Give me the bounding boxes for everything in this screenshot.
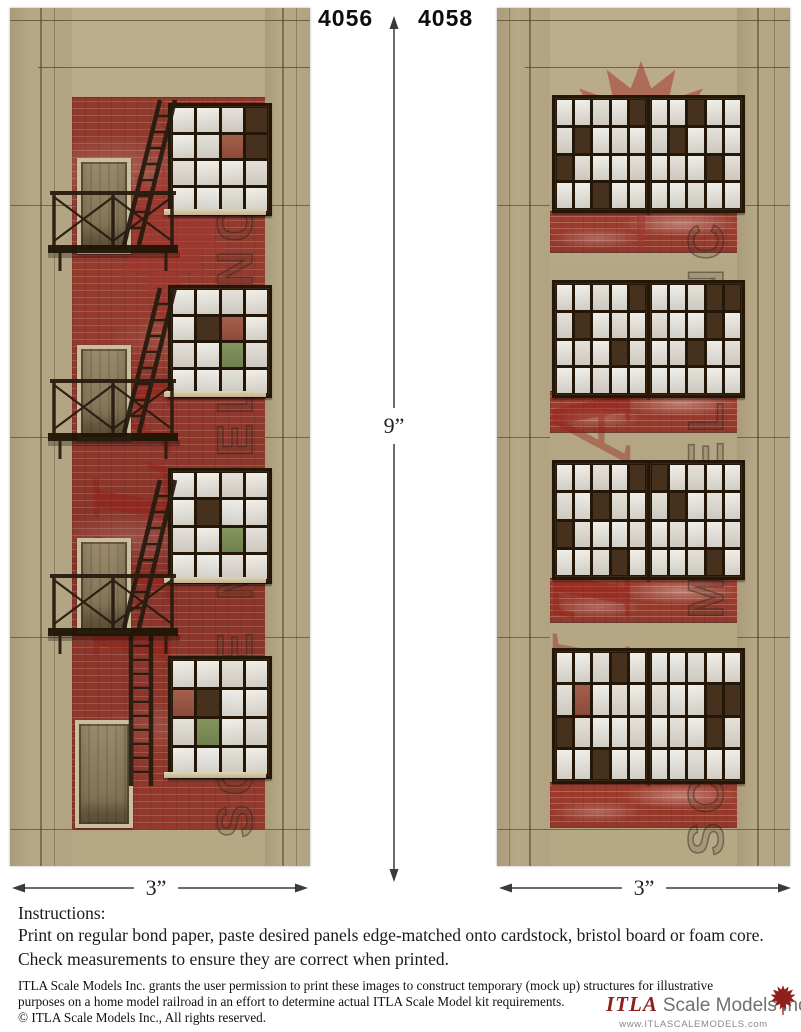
window-pane: [593, 183, 608, 208]
window-pane: [612, 750, 627, 779]
window-pane: [688, 493, 703, 518]
window-pane: [612, 522, 627, 547]
window-pane: [593, 685, 608, 714]
window-pane: [557, 183, 572, 208]
window-pane: [612, 465, 627, 490]
window-pane: [575, 183, 590, 208]
copyright-line: © ITLA Scale Models Inc., All rights res…: [18, 1010, 266, 1026]
window-pane: [575, 550, 590, 575]
window-pane: [630, 341, 645, 366]
window-pane: [575, 285, 590, 310]
window: [552, 280, 650, 398]
window-pane: [670, 685, 685, 714]
window-pane: [652, 128, 667, 153]
window-pane: [707, 285, 722, 310]
window-pane: [593, 522, 608, 547]
window-pane: [725, 100, 740, 125]
window-pane: [725, 285, 740, 310]
window-pane: [593, 128, 608, 153]
fine-print-line: purposes on a home model railroad in an …: [18, 994, 565, 1010]
window-pane: [593, 313, 608, 338]
window-pane: [652, 313, 667, 338]
window-pane: [575, 465, 590, 490]
window-pane: [652, 653, 667, 682]
window-pane: [557, 718, 572, 747]
maple-leaf-logo-icon: [766, 984, 800, 1016]
window-pane: [612, 156, 627, 181]
pilaster-seam: [737, 637, 790, 638]
window-pane: [612, 653, 627, 682]
window-pane: [652, 750, 667, 779]
window-pane: [593, 550, 608, 575]
window-pane: [593, 718, 608, 747]
window-pane: [688, 750, 703, 779]
cornice-line: [497, 20, 790, 21]
window-pane: [630, 183, 645, 208]
window-pane: [725, 313, 740, 338]
window-pane: [575, 653, 590, 682]
window-pane: [630, 100, 645, 125]
window-pane: [612, 100, 627, 125]
window-pane: [630, 313, 645, 338]
window-pane: [575, 522, 590, 547]
window-pane: [670, 341, 685, 366]
window-pane: [725, 465, 740, 490]
window-pane: [688, 465, 703, 490]
window-pane: [670, 368, 685, 393]
window-pane: [725, 685, 740, 714]
window-pane: [725, 718, 740, 747]
window-pane: [557, 341, 572, 366]
window-pane: [612, 183, 627, 208]
window-pane: [688, 156, 703, 181]
window-pane: [630, 465, 645, 490]
window-pane: [575, 341, 590, 366]
window-pane: [688, 368, 703, 393]
instructions-line: Check measurements to ensure they are co…: [18, 949, 449, 970]
window-pane: [652, 368, 667, 393]
window-pane: [725, 493, 740, 518]
brand-logo: ITLA Scale Models Inc. www.ITLASCALEMODE…: [606, 992, 796, 1030]
window-pane: [670, 653, 685, 682]
pilaster-seam: [737, 437, 790, 438]
window: [647, 280, 745, 398]
window-pane: [612, 718, 627, 747]
window: [647, 95, 745, 213]
window-pane: [707, 128, 722, 153]
window-pane: [725, 341, 740, 366]
window-pane: [652, 718, 667, 747]
window-pane: [652, 550, 667, 575]
window-pane: [707, 368, 722, 393]
window-pane: [593, 493, 608, 518]
window-pane: [688, 128, 703, 153]
window-pane: [557, 750, 572, 779]
window-pane: [593, 156, 608, 181]
window-pane: [707, 653, 722, 682]
window-pane: [652, 100, 667, 125]
window-pane: [670, 550, 685, 575]
window-pane: [688, 685, 703, 714]
window-pane: [557, 522, 572, 547]
window-pane: [652, 285, 667, 310]
window-pane: [612, 493, 627, 518]
dimension-label-height: 9”: [378, 408, 410, 444]
window-pane: [630, 368, 645, 393]
window-pane: [557, 550, 572, 575]
window-pane: [575, 128, 590, 153]
window: [647, 648, 745, 784]
window-pane: [612, 285, 627, 310]
building-panel-4056: ITLA SCALE MODELS INC.: [10, 8, 310, 866]
window-pane: [593, 750, 608, 779]
dimension-label-width-right: 3”: [622, 874, 666, 902]
window: [552, 648, 650, 784]
window-pane: [630, 550, 645, 575]
instructions-title: Instructions:: [18, 903, 106, 924]
window-pane: [707, 156, 722, 181]
window-pane: [688, 550, 703, 575]
window-pane: [630, 128, 645, 153]
window-pane: [593, 341, 608, 366]
window-pane: [575, 493, 590, 518]
window-pane: [575, 750, 590, 779]
window-pane: [575, 313, 590, 338]
window-pane: [557, 285, 572, 310]
window-pane: [557, 465, 572, 490]
window-pane: [557, 653, 572, 682]
window-pane: [725, 183, 740, 208]
window-pane: [725, 550, 740, 575]
window-pane: [557, 156, 572, 181]
window-pane: [670, 522, 685, 547]
window: [647, 460, 745, 580]
window-pane: [688, 313, 703, 338]
window-pane: [670, 493, 685, 518]
building-panel-4058: ITLA SCALE MODELS INC.: [497, 8, 790, 866]
product-number-left: 4056: [318, 5, 373, 32]
window-pane: [593, 285, 608, 310]
pilaster-seam: [497, 205, 550, 206]
window-pane: [630, 685, 645, 714]
window-pane: [557, 313, 572, 338]
base-seam: [497, 829, 790, 830]
window-pane: [670, 313, 685, 338]
window-pane: [725, 156, 740, 181]
window-pane: [707, 550, 722, 575]
window: [552, 95, 650, 213]
window-pane: [707, 493, 722, 518]
window-pane: [707, 750, 722, 779]
window: [552, 460, 650, 580]
window-pane: [725, 750, 740, 779]
window-pane: [593, 368, 608, 393]
window-pane: [593, 100, 608, 125]
window-pane: [707, 522, 722, 547]
window-pane: [630, 718, 645, 747]
window-pane: [725, 368, 740, 393]
window-pane: [670, 156, 685, 181]
window-pane: [612, 128, 627, 153]
window-pane: [688, 183, 703, 208]
window-pane: [612, 313, 627, 338]
window-pane: [652, 341, 667, 366]
window-pane: [557, 128, 572, 153]
product-sheet: ITLA SCALE MODELS INC.: [0, 0, 801, 1032]
window-pane: [725, 522, 740, 547]
window-pane: [725, 128, 740, 153]
window-pane: [670, 183, 685, 208]
window-pane: [630, 522, 645, 547]
window-pane: [652, 685, 667, 714]
window-pane: [725, 653, 740, 682]
window-pane: [670, 285, 685, 310]
window-pane: [575, 718, 590, 747]
window-pane: [707, 341, 722, 366]
dimension-label-width-left: 3”: [134, 874, 178, 902]
window-pane: [707, 313, 722, 338]
window-pane: [630, 750, 645, 779]
window-pane: [652, 156, 667, 181]
window-pane: [707, 718, 722, 747]
window-pane: [630, 285, 645, 310]
dimension-arrow-vertical: [386, 16, 402, 882]
window-pane: [652, 183, 667, 208]
window-pane: [688, 653, 703, 682]
window-pane: [612, 685, 627, 714]
window-pane: [707, 183, 722, 208]
window-pane: [575, 100, 590, 125]
window-pane: [670, 465, 685, 490]
window-pane: [630, 493, 645, 518]
window-pane: [557, 493, 572, 518]
window-pane: [575, 156, 590, 181]
window-pane: [630, 156, 645, 181]
instructions-line: Print on regular bond paper, paste desir…: [18, 925, 764, 946]
fire-escape: [10, 8, 310, 866]
window-pane: [593, 465, 608, 490]
brand-name: ITLA: [606, 992, 658, 1017]
window-pane: [557, 100, 572, 125]
window-pane: [612, 341, 627, 366]
window-pane: [670, 718, 685, 747]
window-pane: [652, 522, 667, 547]
window-pane: [688, 341, 703, 366]
window-pane: [707, 465, 722, 490]
window-pane: [630, 653, 645, 682]
window-pane: [575, 685, 590, 714]
window-pane: [707, 685, 722, 714]
window-pane: [557, 368, 572, 393]
window-pane: [652, 465, 667, 490]
window-pane: [652, 493, 667, 518]
window-pane: [557, 685, 572, 714]
window-pane: [593, 653, 608, 682]
window-pane: [612, 368, 627, 393]
website-url: www.ITLASCALEMODELS.com: [606, 1019, 781, 1030]
window-pane: [688, 522, 703, 547]
product-number-right: 4058: [418, 5, 473, 32]
window-pane: [688, 718, 703, 747]
window-pane: [688, 285, 703, 310]
window-pane: [670, 128, 685, 153]
window-pane: [575, 368, 590, 393]
window-pane: [670, 750, 685, 779]
window-pane: [670, 100, 685, 125]
window-pane: [612, 550, 627, 575]
window-pane: [688, 100, 703, 125]
window-pane: [707, 100, 722, 125]
